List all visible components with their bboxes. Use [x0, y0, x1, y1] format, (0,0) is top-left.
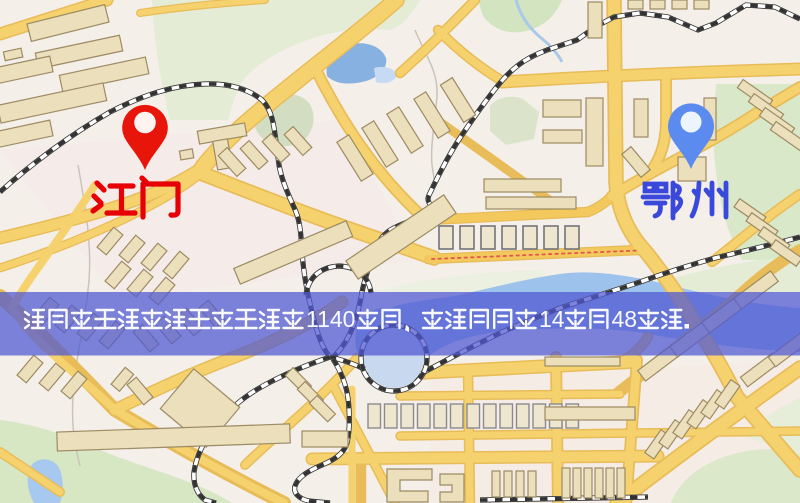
svg-text:14: 14: [539, 306, 565, 332]
svg-text:1140: 1140: [306, 306, 355, 332]
svg-text:48: 48: [612, 306, 638, 332]
